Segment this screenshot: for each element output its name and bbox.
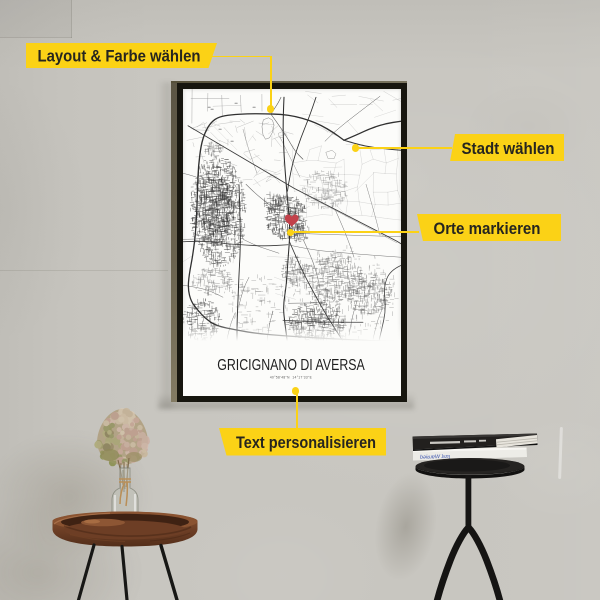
svg-text:GRICIGNANO DI AVERSA: GRICIGNANO DI AVERSA: [217, 357, 365, 374]
svg-text:Stadt wählen: Stadt wählen: [461, 138, 554, 157]
svg-text:Text personalisieren: Text personalisieren: [236, 433, 376, 452]
svg-text:40°58'48"N 14°17'33"E: 40°58'48"N 14°17'33"E: [269, 375, 311, 379]
svg-text:Orte markieren: Orte markieren: [433, 219, 540, 238]
svg-text:Layout & Farbe wählen: Layout & Farbe wählen: [37, 46, 200, 65]
